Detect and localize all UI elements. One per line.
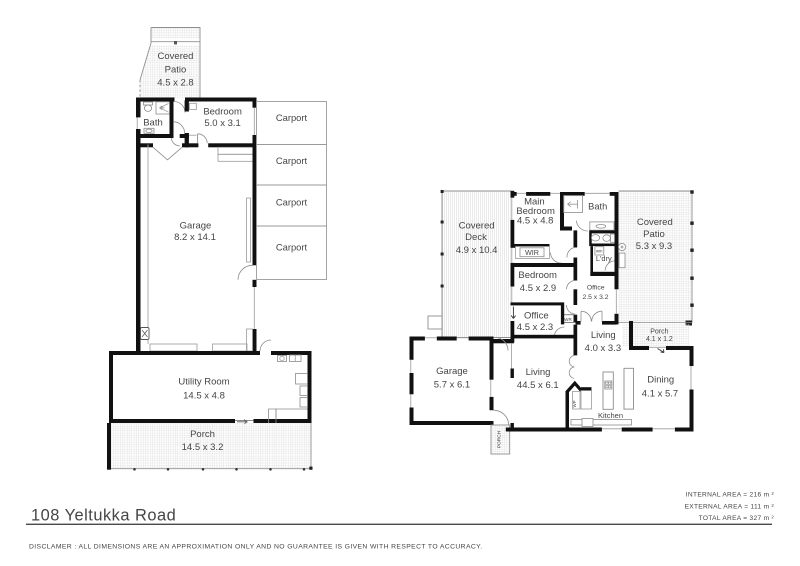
svg-text:Bedroom: Bedroom bbox=[518, 270, 557, 281]
svg-text:Dining: Dining bbox=[647, 374, 674, 385]
svg-text:Garage: Garage bbox=[180, 220, 212, 231]
svg-text:WIR: WIR bbox=[525, 248, 539, 257]
svg-text:Office: Office bbox=[524, 311, 549, 322]
svg-text:Bath: Bath bbox=[588, 202, 607, 212]
svg-text:DISCLAMER : ALL DIMENSIONS ARE: DISCLAMER : ALL DIMENSIONS ARE AN APPROX… bbox=[29, 543, 482, 550]
svg-text:4.5 x 4.8: 4.5 x 4.8 bbox=[517, 215, 553, 226]
svg-text:4.0 x 3.3: 4.0 x 3.3 bbox=[585, 343, 621, 354]
svg-text:PORCH: PORCH bbox=[497, 430, 503, 448]
svg-text:8.2 x 14.1: 8.2 x 14.1 bbox=[174, 232, 216, 243]
svg-text:Covered: Covered bbox=[459, 221, 495, 232]
svg-text:44.5 x 6.1: 44.5 x 6.1 bbox=[517, 380, 559, 391]
svg-text:Patio: Patio bbox=[165, 64, 187, 75]
svg-text:Utility Room: Utility Room bbox=[178, 377, 229, 388]
svg-text:4.1 x 5.7: 4.1 x 5.7 bbox=[642, 388, 678, 399]
svg-text:2.5 x 3.2: 2.5 x 3.2 bbox=[582, 294, 608, 301]
svg-text:14.5 x 4.8: 14.5 x 4.8 bbox=[183, 391, 225, 402]
svg-text:Carport: Carport bbox=[276, 242, 308, 253]
svg-text:Bedroom: Bedroom bbox=[203, 107, 242, 118]
svg-text:4.1 x 1.2: 4.1 x 1.2 bbox=[646, 336, 673, 343]
svg-text:4.5 x 2.9: 4.5 x 2.9 bbox=[520, 283, 556, 294]
svg-text:Deck: Deck bbox=[465, 232, 487, 243]
svg-text:Garage: Garage bbox=[436, 366, 468, 377]
svg-text:L'dry: L'dry bbox=[596, 254, 612, 263]
svg-text:Porch: Porch bbox=[190, 429, 215, 440]
svg-text:Kitchen: Kitchen bbox=[598, 411, 623, 420]
svg-text:4.5 x 2.8: 4.5 x 2.8 bbox=[157, 77, 193, 88]
svg-text:Carport: Carport bbox=[276, 155, 308, 166]
svg-text:WR: WR bbox=[564, 317, 572, 322]
svg-text:wm: wm bbox=[596, 249, 603, 254]
svg-text:Covered: Covered bbox=[158, 51, 194, 62]
svg-text:Carport: Carport bbox=[276, 197, 308, 208]
svg-text:5.7 x 6.1: 5.7 x 6.1 bbox=[434, 379, 470, 390]
svg-text:Living: Living bbox=[591, 330, 616, 341]
svg-text:5.3 x 9.3: 5.3 x 9.3 bbox=[636, 241, 672, 252]
svg-text:4.5 x 2.3: 4.5 x 2.3 bbox=[517, 322, 553, 333]
svg-text:Patio: Patio bbox=[643, 229, 665, 240]
svg-text:Office: Office bbox=[587, 284, 605, 291]
svg-text:Living: Living bbox=[526, 367, 551, 378]
svg-text:Carport: Carport bbox=[276, 112, 308, 123]
svg-text:INTERNAL AREA = 216 m ²: INTERNAL AREA = 216 m ² bbox=[686, 492, 775, 499]
svg-text:Bath: Bath bbox=[143, 118, 163, 129]
svg-text:Covered: Covered bbox=[637, 217, 673, 228]
svg-text:4.9 x 10.4: 4.9 x 10.4 bbox=[456, 245, 498, 256]
svg-text:108 Yeltukka Road: 108 Yeltukka Road bbox=[31, 507, 176, 525]
svg-text:14.5 x 3.2: 14.5 x 3.2 bbox=[182, 442, 224, 453]
svg-text:5.0 x 3.1: 5.0 x 3.1 bbox=[204, 118, 240, 129]
svg-text:EXTERNAL AREA = 111 m ²: EXTERNAL AREA = 111 m ² bbox=[685, 504, 775, 511]
svg-text:Porch: Porch bbox=[650, 328, 668, 335]
svg-text:TOTAL AREA = 327 m ²: TOTAL AREA = 327 m ² bbox=[699, 515, 775, 522]
